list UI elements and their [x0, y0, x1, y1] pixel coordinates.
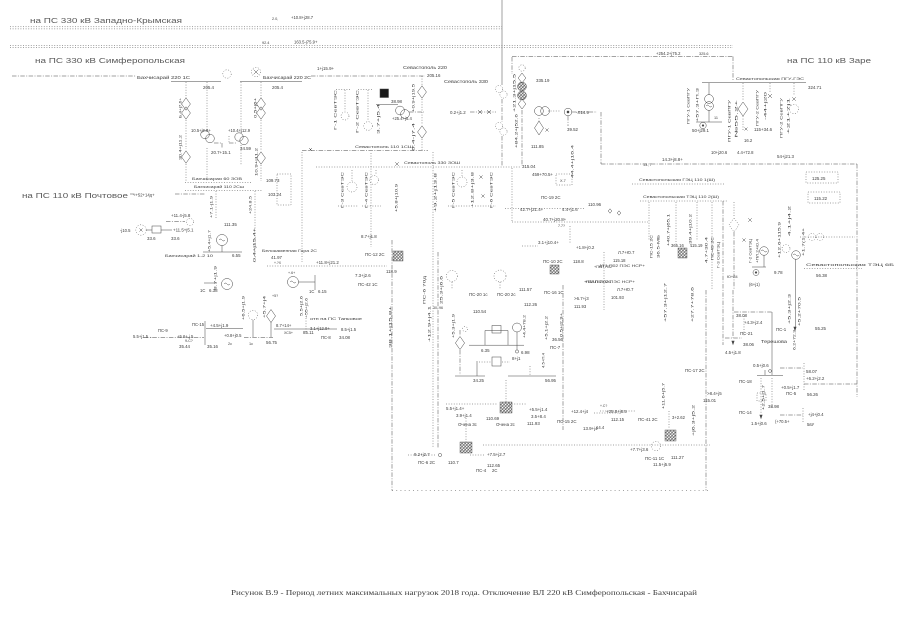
- svg-text:Л.7+Ю.7: Л.7+Ю.7: [617, 287, 634, 292]
- svg-text:ПС-5: ПС-5: [786, 391, 797, 396]
- svg-text:ПС-4: ПС-4: [476, 468, 487, 473]
- svg-text:9-С?: 9-С?: [185, 339, 193, 343]
- svg-text:отп на ПС Танковое: отп на ПС Танковое: [310, 316, 363, 321]
- svg-text:3.5+8.4: 3.5+8.4: [531, 414, 546, 419]
- svg-text:6.98: 6.98: [521, 350, 530, 355]
- svg-text:ПС-41 2С: ПС-41 2С: [638, 417, 658, 422]
- svg-text:Г-4 СевТЭС: Г-4 СевТЭС: [363, 172, 368, 208]
- svg-text:5.5+j1.5 ←: 5.5+j1.5 ←: [133, 334, 153, 339]
- svg-text:+5.3+j2.3: +5.3+j2.3: [786, 294, 791, 324]
- svg-text:115.22: 115.22: [814, 196, 828, 201]
- svg-text:ПГУ-2 СевПГУ: ПГУ-2 СевПГУ: [754, 89, 759, 126]
- svg-text:+5.7+j4: +5.7+j4: [261, 295, 266, 318]
- svg-text:>8.4+j5: >8.4+j5: [707, 391, 722, 396]
- svg-text:10.9+j11.2: 10.9+j11.2: [253, 148, 258, 176]
- svg-text:44.4+j16.4: 44.4+j16.4: [569, 143, 574, 178]
- svg-text:111.93: 111.93: [527, 421, 540, 426]
- svg-text:ПС-6 70д: ПС-6 70д: [421, 275, 426, 304]
- svg-text:118.9: 118.9: [386, 269, 397, 274]
- svg-text:1с: 1с: [249, 342, 253, 346]
- svg-text:(6+j1): (6+j1): [749, 282, 760, 287]
- svg-text:+.6+: +.6+: [288, 271, 295, 275]
- svg-text:ХС5+: ХС5+: [284, 331, 293, 335]
- svg-text:42.7+j21.4+: 42.7+j21.4+: [520, 207, 544, 212]
- svg-text:115.18: 115.18: [613, 258, 626, 263]
- svg-text:115.19: 115.19: [690, 243, 703, 248]
- svg-text:+5.3+j1.9: +5.3+j1.9: [450, 314, 455, 338]
- svg-text:365.16: 365.16: [671, 243, 684, 248]
- svg-text:+4.3+j2.4: +4.3+j2.4: [744, 320, 763, 325]
- svg-text:ПС-15 2С: ПС-15 2С: [557, 419, 577, 424]
- svg-text:50+j29.1: 50+j29.1: [692, 128, 710, 133]
- svg-text:163.5-j75.9+: 163.5-j75.9+: [294, 40, 318, 45]
- svg-text:1С: 1С: [309, 289, 314, 294]
- svg-text:13.,7: 13.,7: [643, 163, 651, 167]
- svg-text:3.7+j5.4: 3.7+j5.4: [375, 102, 380, 134]
- svg-text:+5.8+j10.9: +5.8+j10.9: [393, 184, 398, 212]
- svg-text:205.4: 205.4: [272, 85, 284, 90]
- svg-text:11.5+j5.9: 11.5+j5.9: [653, 462, 671, 467]
- svg-text:-j10.5: -j10.5: [120, 228, 131, 233]
- svg-text:Бахчисарай 110 2Сш: Бахчисарай 110 2Сш: [194, 184, 244, 189]
- svg-text:16.2: 16.2: [744, 138, 753, 143]
- svg-text:Бахчисарая 60 ЗОВ: Бахчисарая 60 ЗОВ: [192, 176, 243, 181]
- svg-text:+57.3+j12.7: +57.3+j12.7: [662, 283, 667, 322]
- svg-text:4.7+30.4: 4.7+30.4: [703, 236, 708, 263]
- svg-text:7.3+j2.6: 7.3+j2.6: [355, 273, 371, 278]
- svg-text:7.7?: 7.7?: [558, 224, 565, 228]
- svg-text:+6.5+j1.9: +6.5+j1.9: [240, 296, 245, 320]
- svg-text:111.35: 111.35: [224, 222, 237, 227]
- svg-text:Г-6 СевТЭС: Г-6 СевТЭС: [488, 172, 493, 208]
- svg-text:+7.1-j1.9: +7.1-j1.9: [208, 196, 213, 218]
- svg-text:Очена 3с: Очена 3с: [458, 422, 478, 427]
- svg-text:6.2+72.3: 6.2+72.3: [791, 330, 796, 350]
- svg-text:118.8: 118.8: [573, 259, 584, 264]
- svg-text:54+j21.3: 54+j21.3: [777, 154, 795, 159]
- svg-text:ПС-49 2С: ПС-49 2С: [709, 237, 714, 260]
- svg-text:+5.2+70.5: +5.2+70.5: [796, 297, 801, 326]
- svg-text:0.5+j0.6: 0.5+j0.6: [753, 363, 769, 368]
- svg-text:4.5+j1.8: 4.5+j1.8: [725, 350, 741, 355]
- svg-text:30, 96: 30, 96: [433, 306, 443, 310]
- svg-text:+55+j2.6: +55+j2.6: [303, 298, 308, 318]
- svg-text:324.71: 324.71: [808, 85, 822, 90]
- svg-text:+21.3+j15.5: +21.3+j15.5: [511, 74, 516, 112]
- svg-text:~+52+14д+: ~+52+14д+: [133, 193, 155, 198]
- svg-text:110.7: 110.7: [448, 460, 459, 465]
- svg-text:115.01: 115.01: [703, 398, 717, 403]
- svg-text:+j6.3+j5.2: +j6.3+j5.2: [690, 405, 695, 436]
- svg-text:0.2+j1.2: 0.2+j1.2: [450, 110, 466, 115]
- svg-text:(+70.5+: (+70.5+: [775, 419, 790, 424]
- svg-text:6.35: 6.35: [481, 348, 490, 353]
- svg-text:4.4+j1.6: 4.4+j1.6: [562, 207, 578, 212]
- svg-text:ПС-17 2С: ПС-17 2С: [685, 368, 705, 373]
- svg-text:115+34.6: 115+34.6: [754, 127, 773, 132]
- svg-text:Очена 2с: Очена 2с: [496, 422, 516, 427]
- svg-text:6.38: 6.38: [209, 288, 218, 293]
- svg-text:205.4: 205.4: [203, 85, 215, 90]
- svg-text:38.98: 38.98: [768, 404, 780, 409]
- svg-text:ПС-12 2С: ПС-12 2С: [365, 252, 385, 257]
- svg-text:ПС-11 1С: ПС-11 1С: [645, 456, 664, 461]
- svg-text:111.93: 111.93: [574, 304, 587, 309]
- svg-text:8.7+j1.8: 8.7+j1.8: [361, 234, 377, 239]
- svg-text:335.19: 335.19: [536, 78, 550, 83]
- svg-text:9.78: 9.78: [774, 270, 783, 275]
- svg-text:8.7+14+: 8.7+14+: [276, 323, 292, 328]
- svg-text:3+2.62: 3+2.62: [672, 415, 686, 420]
- svg-text:38.08: 38.08: [736, 313, 748, 318]
- svg-text:4.5+П.4: 4.5+П.4: [540, 352, 545, 368]
- svg-text:ПС-42 1С: ПС-42 1С: [358, 282, 378, 287]
- svg-text:Терешова: Терешова: [761, 339, 788, 344]
- svg-text:36.5-МБ: 36.5-МБ: [655, 234, 660, 258]
- svg-text:39.52: 39.52: [567, 127, 579, 132]
- svg-text:на ПС 110 кВ Заре: на ПС 110 кВ Заре: [787, 58, 871, 65]
- svg-text:3.9+j1.4: 3.9+j1.4: [456, 413, 472, 418]
- svg-text:Г-3 СевТЭЦ: Г-3 СевТЭЦ: [715, 242, 720, 268]
- svg-text:Л.7+Ю.7: Л.7+Ю.7: [618, 250, 635, 255]
- svg-text:+12.4+j4: +12.4+j4: [571, 409, 589, 414]
- svg-text:+12.8+j3.8: +12.8+j3.8: [469, 172, 474, 208]
- svg-text:Х.7: Х.7: [560, 179, 566, 183]
- svg-text:205.16: 205.16: [427, 73, 441, 78]
- svg-text:5вУ: 5вУ: [807, 422, 815, 427]
- svg-text:Г-2 СевТЭС: Г-2 СевТЭС: [354, 90, 359, 133]
- svg-text:ПС-1: ПС-1: [776, 327, 787, 332]
- svg-text:3.1+j10.4+: 3.1+j10.4+: [538, 240, 559, 245]
- svg-text:Севастопольская ГЭЦ 110 1(Ш): Севастопольская ГЭЦ 110 1(Ш): [639, 177, 716, 182]
- svg-text:111.57: 111.57: [519, 287, 532, 292]
- svg-text:+7.5+j2.7: +7.5+j2.7: [487, 452, 506, 457]
- svg-text:14.4: 14.4: [596, 425, 605, 430]
- svg-text:ПС-20 1с: ПС-20 1с: [469, 292, 488, 297]
- svg-text:+7.7+j3.6: +7.7+j3.6: [630, 447, 649, 452]
- svg-text:6.55: 6.55: [232, 253, 241, 258]
- svg-text:103.24: 103.24: [268, 192, 282, 197]
- svg-text:+10.4+j12.9: +10.4+j12.9: [228, 128, 251, 133]
- svg-text:0.5+j6+: 0.5+j6+: [252, 97, 257, 118]
- svg-text:112.26: 112.26: [524, 302, 538, 307]
- svg-text:+5.1+j2.2: +5.1+j2.2: [543, 316, 548, 340]
- svg-text:20.7+15.1: 20.7+15.1: [211, 150, 231, 155]
- svg-text:на ПС 110 кВ Почтовое: на ПС 110 кВ Почтовое: [22, 193, 128, 200]
- svg-text:110.54: 110.54: [473, 309, 487, 314]
- svg-text:+57.3+П.3: +57.3+П.3: [694, 88, 699, 122]
- svg-text:Г-2 СевТЭЦ: Г-2 СевТЭЦ: [747, 239, 752, 263]
- svg-text:+0.5+j1.7: +0.5+j1.7: [781, 385, 800, 390]
- svg-text:ПС-15: ПС-15: [192, 322, 205, 327]
- svg-text:Рисунок В.9 - Период летних ма: Рисунок В.9 - Период летних максимальных…: [231, 588, 697, 597]
- svg-text:0.5+j2.9+: 0.5+j2.9+: [558, 312, 563, 337]
- svg-text:1С: 1С: [200, 288, 205, 293]
- svg-text:+.?Х: +.?Х: [274, 261, 282, 265]
- svg-text:+ПАП П02: +ПАП П02: [594, 265, 612, 269]
- svg-text:+40.7+j65.1: +40.7+j65.1: [665, 214, 670, 246]
- svg-text:35.16: 35.16: [207, 344, 219, 349]
- svg-text:58.07: 58.07: [806, 369, 818, 374]
- svg-text:Севастополь 330: Севастополь 330: [444, 79, 489, 84]
- svg-text:92.4: 92.4: [262, 41, 269, 45]
- svg-text:41.97: 41.97: [271, 255, 283, 260]
- svg-text:40.7+j20.8+: 40.7+j20.8+: [543, 217, 567, 222]
- svg-text:2с: 2с: [228, 342, 232, 346]
- svg-text:-Л14.9: -Л14.9: [576, 110, 589, 115]
- svg-text:Ю+Л4: Ю+Л4: [727, 275, 738, 279]
- svg-text:110.69: 110.69: [486, 416, 500, 421]
- svg-text:14.3+j8.8+: 14.3+j8.8+: [662, 157, 683, 162]
- svg-text:+11.4-j5.8: +11.4-j5.8: [171, 213, 191, 218]
- svg-text:112.15: 112.15: [611, 417, 625, 422]
- svg-text:9.2+j2.7: 9.2+j2.7: [414, 452, 430, 457]
- svg-text:+0.8+j0.5: +0.8+j0.5: [224, 333, 242, 338]
- svg-text:111.27: 111.27: [671, 455, 684, 460]
- svg-text:ПС-7: ПС-7: [550, 345, 561, 350]
- svg-text:-44+j20: -44+j20: [762, 90, 767, 120]
- svg-text:+21+7j1: +21+7j1: [785, 98, 790, 134]
- svg-text:+4.5+j1.9: +4.5+j1.9: [210, 323, 229, 328]
- svg-text:56.95: 56.95: [545, 378, 557, 383]
- svg-text:0.4+j15.4+: 0.4+j15.4+: [251, 227, 256, 262]
- svg-text:2.0,: 2.0,: [272, 17, 278, 21]
- svg-text:Г-5 СевТЭС: Г-5 СевТЭС: [450, 172, 455, 208]
- svg-text:34.59: 34.59: [240, 146, 252, 151]
- svg-text:109.73: 109.73: [266, 178, 280, 183]
- svg-text:325.6: 325.6: [699, 52, 709, 56]
- svg-text:+24.8.5: +24.8.5: [247, 196, 252, 214]
- svg-text:8.7+j1.9: 8.7+j1.9: [212, 266, 217, 290]
- svg-text:1+j15.9+: 1+j15.9+: [317, 66, 335, 71]
- svg-text:8.5+j1.5: 8.5+j1.5: [341, 327, 357, 332]
- svg-text:459+70.5+: 459+70.5+: [532, 172, 553, 177]
- svg-text:ПГУ-2 СевПГУ: ПГУ-2 СевПГУ: [778, 97, 783, 138]
- svg-text:Севастопольская ПГУ-ГЭС: Севастопольская ПГУ-ГЭС: [736, 76, 804, 81]
- svg-text:>6.7+j3: >6.7+j3: [574, 296, 589, 301]
- svg-text:ПС-21: ПС-21: [740, 331, 753, 336]
- svg-text:+27.7+78.6: +27.7+78.6: [689, 287, 694, 322]
- svg-text:+5.4+j1.7: +5.4+j1.7: [206, 230, 211, 252]
- svg-text:ПС-16 1С: ПС-16 1С: [544, 290, 564, 295]
- svg-text:110.96: 110.96: [588, 202, 602, 207]
- svg-text:+1.8+j0.2: +1.8+j0.2: [576, 245, 595, 250]
- svg-text:33.6: 33.6: [171, 236, 180, 241]
- svg-text:38.1+j15.8+: 38.1+j15.8+: [387, 305, 392, 348]
- svg-text:4.4+72.8: 4.4+72.8: [737, 150, 754, 155]
- svg-text:+11.6+j5.7: +11.6+j5.7: [660, 383, 665, 409]
- svg-text:6.15: 6.15: [318, 289, 327, 294]
- svg-text:38.06: 38.06: [743, 342, 755, 347]
- svg-text:Севастополь 220: Севастополь 220: [403, 65, 448, 70]
- svg-text:+4.4+78.2: +4.4+78.2: [521, 315, 526, 338]
- svg-text:ПС-8: ПС-8: [321, 335, 331, 340]
- svg-text:Г-1 СевТЭС: Г-1 СевТЭС: [332, 90, 337, 130]
- svg-text:+12.9+j4.1: +12.9+j4.1: [426, 306, 431, 342]
- svg-text:Севастополь 110 1СШ: Севастополь 110 1СШ: [355, 144, 413, 149]
- svg-text:Белокаменная Гора 2С: Белокаменная Гора 2С: [262, 248, 317, 253]
- svg-text:Бахчисарай 220 1С: Бахчисарай 220 1С: [137, 75, 190, 80]
- svg-text:56.26: 56.26: [807, 392, 819, 397]
- svg-text:Бахчисарай 220 2С: Бахчисарай 220 2С: [263, 75, 311, 80]
- svg-text:+25.4+j5.4: +25.4+j5.4: [392, 116, 412, 121]
- svg-text:85.11: 85.11: [303, 330, 314, 335]
- svg-text:8+j1: 8+j1: [512, 356, 521, 361]
- svg-text:+ПЛ.2+Ю.4: +ПЛ.2+Ю.4: [754, 238, 759, 263]
- svg-text:ПС-10 2С: ПС-10 2С: [543, 259, 563, 264]
- svg-text:+11.8+j21.2: +11.8+j21.2: [316, 260, 339, 265]
- svg-text:ПС-9: ПС-9: [158, 328, 168, 333]
- svg-text:55.25: 55.25: [815, 326, 827, 331]
- svg-text:ПС-14: ПС-14: [739, 410, 752, 415]
- svg-text:35.44: 35.44: [179, 344, 191, 349]
- svg-text:на ПС 330 кВ Западно-Крымская: на ПС 330 кВ Западно-Крымская: [30, 18, 182, 25]
- svg-text:10+j20.6: 10+j20.6: [711, 150, 728, 155]
- svg-text:ПС-19 2С: ПС-19 2С: [541, 195, 561, 200]
- svg-text:ПС-6 2С: ПС-6 2С: [418, 460, 435, 465]
- svg-text:5.5+j1.4+: 5.5+j1.4+: [446, 406, 465, 411]
- svg-text:Бахчисарай 1-2 10: Бахчисарай 1-2 10: [165, 253, 214, 258]
- svg-text:Б.4+j7.6+: Б.4+j7.6+: [177, 97, 182, 118]
- svg-text:+0.9+j19.5: +0.9+j19.5: [410, 84, 415, 112]
- svg-text:+254.2+j75.2: +254.2+j75.2: [656, 51, 681, 56]
- svg-text:Севастопольская ТЭЦ 6Б: Севастопольская ТЭЦ 6Б: [806, 262, 895, 267]
- svg-text:+11.5+j5.1: +11.5+j5.1: [173, 228, 194, 233]
- svg-text:+5?: +5?: [272, 294, 278, 298]
- svg-text:+j4+j0.4: +j4+j0.4: [808, 412, 824, 417]
- svg-text:+84.2+j52.6: +84.2+j52.6: [513, 114, 518, 148]
- svg-text:315.04: 315.04: [522, 164, 536, 169]
- svg-text:ПС-20 2с: ПС-20 2с: [497, 292, 516, 297]
- svg-text:33.6: 33.6: [147, 236, 156, 241]
- svg-text:1.5+j0.6: 1.5+j0.6: [751, 421, 767, 426]
- svg-text:+ПАП П02 ПЭС: +ПАП П02 ПЭС: [584, 280, 612, 284]
- svg-text:+25.8+j8.5: +25.8+j8.5: [606, 409, 627, 414]
- svg-text:56.75: 56.75: [266, 340, 278, 345]
- svg-text:на ПС 330 кВ Симферопольская: на ПС 330 кВ Симферопольская: [35, 58, 185, 65]
- svg-text:34.08: 34.08: [339, 335, 351, 340]
- svg-text:+10.8+j28.7: +10.8+j28.7: [291, 15, 314, 20]
- svg-text:125.25: 125.25: [812, 176, 826, 181]
- svg-text:111.85: 111.85: [531, 144, 544, 149]
- svg-text:Г-3 СевТЭС: Г-3 СевТЭС: [339, 172, 344, 208]
- svg-text:№55.2+: №55.2+: [733, 98, 738, 138]
- svg-text:11: 11: [714, 116, 718, 120]
- svg-text:Севастопольская ТЭЦ 110 2(Ш): Севастопольская ТЭЦ 110 2(Ш): [643, 194, 720, 199]
- svg-text:+12.6+115.9: +12.6+115.9: [776, 222, 781, 258]
- svg-text:38.98: 38.98: [391, 99, 403, 104]
- svg-text:+1.7(1.4+: +1.7(1.4+: [800, 227, 805, 256]
- svg-text:34.25: 34.25: [473, 378, 485, 383]
- svg-text:ПГУ-1 СевПГУ: ПГУ-1 СевПГУ: [726, 99, 731, 142]
- svg-text:ПГУ-1 СевПГУ: ПГУ-1 СевПГУ: [685, 87, 690, 124]
- svg-text:25.3+j6.6: 25.3+j6.6: [438, 276, 443, 304]
- svg-text:4.1+j4.2: 4.1+j4.2: [786, 206, 791, 236]
- svg-text:56.38: 56.38: [816, 273, 828, 278]
- svg-text:30.4+j11.2: 30.4+j11.2: [177, 135, 182, 160]
- svg-text:101.93: 101.93: [611, 295, 624, 300]
- svg-text:+.С?: +.С?: [600, 404, 607, 408]
- svg-text:+5.5+j1.4: +5.5+j1.4: [529, 407, 548, 412]
- svg-text:-39.4+j10.2: -39.4+j10.2: [687, 214, 692, 246]
- svg-text:2С: 2С: [492, 468, 497, 473]
- svg-text:ПС-18: ПС-18: [739, 379, 752, 384]
- svg-text:Севастополь 330 ЗОШ: Севастополь 330 ЗОШ: [404, 160, 460, 165]
- svg-text:+6.2+j2.2: +6.2+j2.2: [806, 376, 825, 381]
- svg-text:ПС-15 2С: ПС-15 2С: [648, 235, 653, 258]
